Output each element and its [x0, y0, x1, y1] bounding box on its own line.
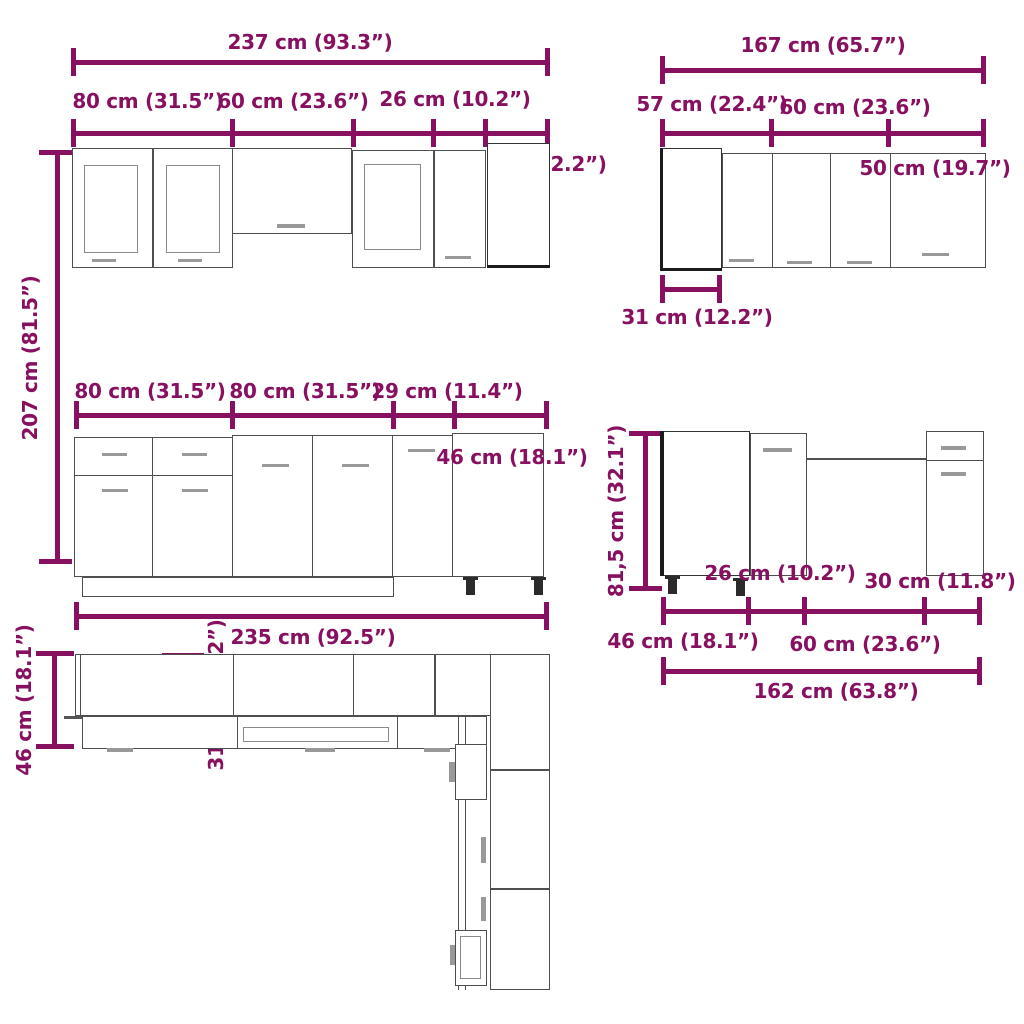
cabinet-divider	[434, 654, 436, 716]
dim-tick	[661, 657, 666, 685]
door-front-tab	[481, 897, 486, 921]
base-cabinet-double	[232, 435, 394, 577]
dim-label-50cm: 50 cm (19.7”)	[835, 156, 1024, 180]
cabinet-shadow-edge	[660, 431, 664, 576]
drawer-handle	[763, 448, 792, 452]
dim-tick	[886, 119, 891, 147]
dim-tick	[452, 401, 457, 429]
plan-corner-cabinet	[490, 654, 550, 770]
cabinet-foot	[534, 579, 543, 595]
dim-label-total-width: 162 cm (63.8”)	[736, 679, 936, 703]
dim-label-height-207: 207 cm (81.5”)	[18, 258, 42, 458]
dim-tick	[802, 597, 807, 625]
dim-tick	[431, 119, 436, 147]
drawer-handle	[102, 453, 127, 456]
door-handle	[729, 259, 754, 262]
cabinet-divider	[312, 435, 313, 577]
door-handle	[178, 259, 202, 262]
dim-tick	[36, 744, 74, 749]
dim-label-total-width: 235 cm (92.5”)	[213, 625, 413, 649]
door-handle	[102, 489, 128, 492]
corner-wall-cabinet	[487, 143, 550, 268]
door-front-tab	[481, 837, 486, 863]
dim-tick	[629, 586, 662, 591]
cabinet-foot	[466, 579, 475, 595]
door-front-tab	[424, 748, 450, 752]
dim-tick	[39, 150, 72, 155]
dim-label-29cm: 29 cm (11.4”)	[347, 379, 547, 403]
dim-tick	[351, 119, 356, 147]
base-cabinet-30	[926, 431, 984, 576]
dim-tick	[661, 597, 666, 625]
corner-wall-cabinet	[660, 148, 722, 271]
dim-label-depth-46: 46 cm (18.1”)	[12, 600, 36, 800]
cabinet-divider	[152, 437, 153, 577]
door-panel	[84, 165, 138, 253]
cabinet-shadow-edge	[660, 268, 722, 271]
dim-tick	[769, 119, 774, 147]
plan-wall-cabinet-stub	[455, 744, 487, 800]
cabinet-divider	[152, 148, 154, 268]
dim-tick	[660, 119, 665, 147]
plan-leg-cabinet	[490, 889, 550, 990]
dim-line	[661, 669, 982, 674]
dim-tick	[717, 275, 722, 303]
dim-line	[660, 131, 986, 136]
door-handle	[941, 472, 966, 476]
dim-line-vertical	[643, 433, 648, 589]
dim-tick	[230, 119, 235, 147]
dim-line	[661, 609, 982, 614]
dim-label-60cm: 60 cm (23.6”)	[765, 632, 965, 656]
dim-line	[71, 60, 550, 65]
dim-tick	[71, 119, 76, 147]
cabinet-shadow-edge	[660, 148, 663, 271]
dim-tick	[977, 597, 982, 625]
cabinet-divider	[237, 716, 238, 749]
wall-cabinet-hood	[232, 148, 352, 234]
wall-cabinet-26	[434, 150, 486, 268]
dim-line	[660, 287, 722, 292]
door-handle	[922, 253, 949, 256]
door-handle	[277, 224, 305, 228]
door-handle	[182, 489, 208, 492]
door-handle	[342, 464, 369, 467]
dim-tick	[977, 657, 982, 685]
dim-line	[71, 131, 550, 136]
dim-tick	[629, 431, 662, 436]
dim-tick	[74, 401, 79, 429]
worktop-line	[807, 458, 926, 460]
dim-label-60cm: 60 cm (23.6”)	[755, 95, 955, 119]
door-handle	[262, 464, 289, 467]
dim-tick	[545, 48, 550, 76]
dim-label-46cm: 46 cm (18.1”)	[583, 629, 783, 653]
open-drawer-panel	[460, 936, 481, 979]
dim-line	[660, 68, 986, 73]
open-drawer-panel	[243, 727, 389, 742]
dim-tick	[981, 119, 986, 147]
dim-tick	[746, 597, 751, 625]
plan-edge-lip	[64, 716, 82, 719]
plan-leg-cabinet	[490, 770, 550, 889]
dim-tick	[544, 602, 549, 630]
dim-label-height-815: 81,5 cm (32.1”)	[604, 411, 628, 611]
door-panel	[364, 164, 421, 250]
door-handle	[445, 256, 471, 259]
cabinet-divider	[830, 153, 831, 268]
dim-tick	[391, 401, 396, 429]
door-front-tab	[449, 762, 455, 782]
dim-tick	[74, 602, 79, 630]
cabinet-caster	[668, 578, 677, 594]
cabinet-shadow-edge	[487, 265, 550, 268]
dim-label-46cm: 46 cm (18.1”)	[412, 445, 612, 469]
dim-line-vertical	[55, 152, 60, 564]
cabinet-plinth	[82, 577, 394, 597]
dim-label-total-width: 167 cm (65.7”)	[723, 33, 923, 57]
dim-tick	[230, 401, 235, 429]
dim-tick	[71, 48, 76, 76]
cabinet-divider	[397, 716, 398, 749]
cabinet-divider	[353, 654, 354, 716]
door-handle	[847, 261, 872, 264]
door-handle	[787, 261, 812, 264]
dim-label-total-width: 237 cm (93.3”)	[210, 30, 410, 54]
dim-line	[74, 614, 549, 619]
dim-line	[74, 413, 549, 418]
dim-tick	[660, 275, 665, 303]
dim-label-30cm: 30 cm (11.8”)	[840, 569, 1024, 593]
dim-line-vertical	[52, 653, 57, 749]
dimension-diagram: 237 cm (93.3”) 80 cm (31.5”) 60 cm (23.6…	[0, 0, 1024, 1024]
dim-label-31cm-depth: 31 cm (12.2”)	[597, 305, 797, 329]
dim-tick	[36, 651, 74, 656]
corner-base-cabinet	[660, 431, 750, 576]
door-front-tab	[450, 945, 455, 965]
dim-tick	[544, 401, 549, 429]
door-panel	[166, 165, 220, 253]
plan-wall-cabinet-band	[75, 654, 550, 716]
drawer-handle	[941, 446, 966, 450]
door-front-tab	[305, 748, 335, 752]
dim-label-26cm: 26 cm (10.2”)	[355, 87, 555, 111]
drawer-divider	[74, 475, 233, 476]
drawer-handle	[182, 453, 207, 456]
door-handle	[92, 259, 116, 262]
door-front-tab	[107, 748, 133, 752]
base-cabinet-26	[750, 433, 807, 576]
dim-tick	[660, 56, 665, 84]
plan-edge-line	[80, 654, 81, 716]
dim-tick	[981, 56, 986, 84]
cabinet-divider	[233, 654, 234, 716]
dim-tick	[922, 597, 927, 625]
dim-tick	[39, 559, 72, 564]
drawer-divider	[926, 460, 984, 461]
base-cabinet-drawers	[74, 437, 233, 577]
cabinet-divider	[772, 153, 773, 268]
